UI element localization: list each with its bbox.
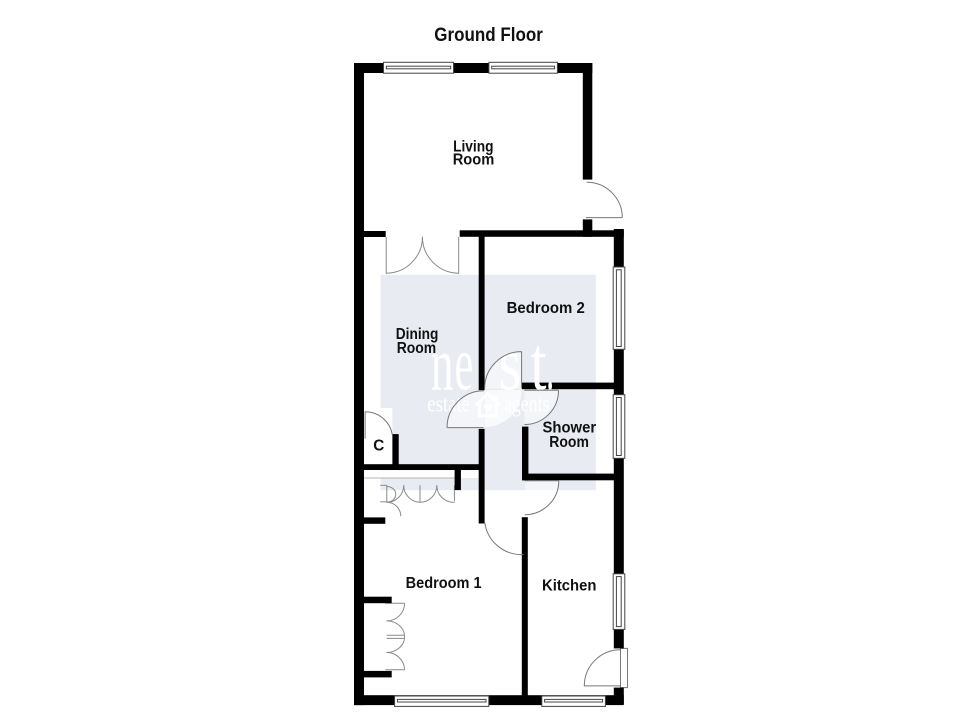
svg-text:Bedroom 1: Bedroom 1 [406, 575, 482, 592]
svg-text:C: C [373, 437, 384, 454]
svg-text:Kitchen: Kitchen [542, 577, 596, 594]
svg-text:Room: Room [549, 434, 589, 451]
svg-text:Bedroom 2: Bedroom 2 [507, 300, 585, 317]
svg-text:estate: estate [427, 392, 470, 418]
svg-text:Ground Floor: Ground Floor [434, 24, 543, 46]
svg-text:Room: Room [397, 340, 437, 357]
svg-text:agents: agents [504, 392, 549, 418]
svg-text:Room: Room [453, 152, 495, 169]
